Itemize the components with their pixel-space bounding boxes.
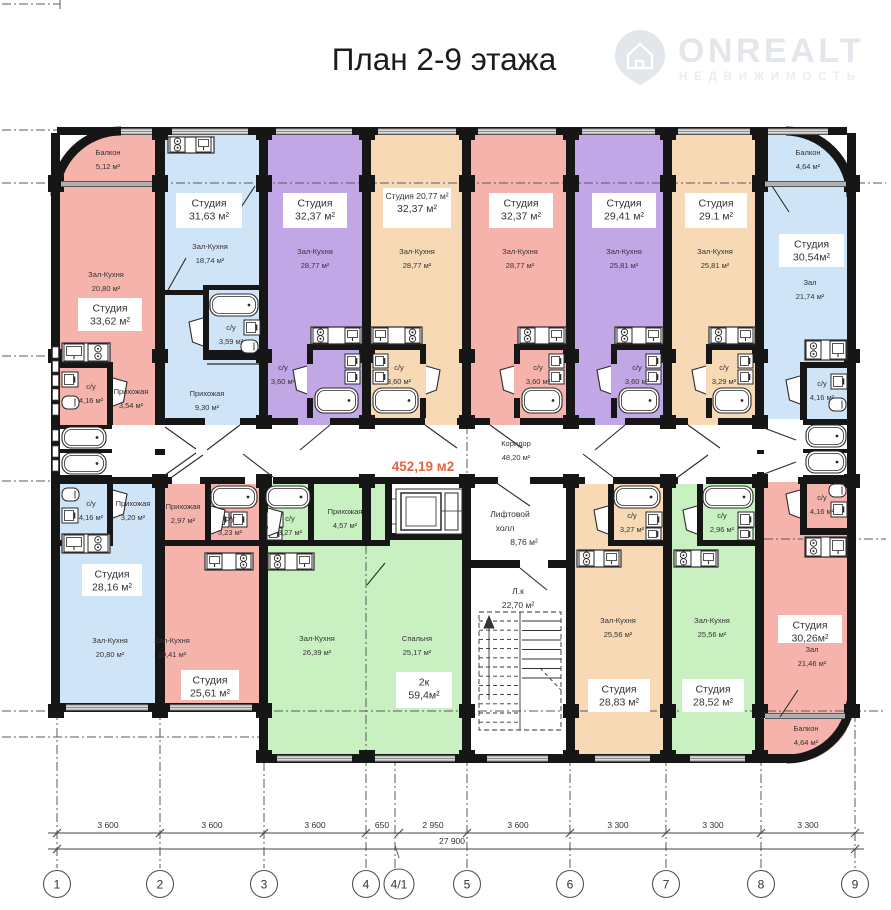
svg-text:18,74 м²: 18,74 м² [196,256,225,265]
svg-text:8: 8 [758,878,765,892]
svg-text:Зал-Кухня: Зал-Кухня [399,247,435,256]
svg-text:3 600: 3 600 [507,820,529,830]
svg-text:48,20 м²: 48,20 м² [502,453,531,462]
svg-text:Студия: Студия [92,303,127,315]
svg-text:Спальня: Спальня [402,634,432,643]
svg-text:8,76 м²: 8,76 м² [510,537,538,547]
svg-text:20,80 м²: 20,80 м² [96,650,125,659]
svg-text:4,64 м²: 4,64 м² [796,162,821,171]
svg-text:21,74 м²: 21,74 м² [796,292,825,301]
svg-text:с/у: с/у [278,363,288,372]
svg-text:2,96 м²: 2,96 м² [710,525,735,534]
svg-text:Зал: Зал [805,645,818,654]
svg-text:3,60 м²: 3,60 м² [387,377,412,386]
svg-text:3 300: 3 300 [797,820,819,830]
svg-text:3,60 м²: 3,60 м² [625,377,650,386]
svg-text:3 600: 3 600 [304,820,326,830]
svg-text:с/у: с/у [817,379,827,388]
svg-text:26,39 м²: 26,39 м² [303,648,332,657]
svg-text:с/у: с/у [817,493,827,502]
svg-text:Студия: Студия [606,198,641,210]
svg-text:3,60 м²: 3,60 м² [526,377,551,386]
svg-text:Зал-Кухня: Зал-Кухня [606,247,642,256]
svg-text:Зал-Кухня: Зал-Кухня [92,636,128,645]
svg-text:с/у: с/у [285,514,295,523]
svg-text:Балкон: Балкон [793,724,818,733]
svg-text:28,16 м²: 28,16 м² [92,582,132,594]
svg-text:Студия: Студия [503,198,538,210]
svg-text:3,59 м²: 3,59 м² [219,337,244,346]
svg-text:19,41 м²: 19,41 м² [158,650,187,659]
svg-text:Студия: Студия [601,684,636,696]
svg-text:3,29 м²: 3,29 м² [712,377,737,386]
svg-text:59,4м²: 59,4м² [408,690,440,702]
svg-text:32,37 м²: 32,37 м² [295,211,335,223]
svg-text:28,83 м²: 28,83 м² [599,697,639,709]
svg-text:3,23 м²: 3,23 м² [218,528,243,537]
svg-text:холл: холл [496,523,515,533]
svg-text:29,41 м²: 29,41 м² [604,211,644,223]
svg-text:Зал-Кухня: Зал-Кухня [192,242,228,251]
svg-text:5: 5 [464,878,471,892]
svg-text:29.1 м²: 29.1 м² [699,211,734,223]
svg-text:Студия 20,77 м²: Студия 20,77 м² [385,191,448,201]
svg-text:22,70 м²: 22,70 м² [502,600,534,610]
svg-text:25,81 м²: 25,81 м² [610,261,639,270]
svg-text:2,97 м²: 2,97 м² [171,516,196,525]
svg-text:32,37 м²: 32,37 м² [397,203,437,215]
svg-text:Коридор: Коридор [501,439,531,448]
svg-text:33,62 м²: 33,62 м² [90,316,130,328]
svg-text:3 600: 3 600 [201,820,223,830]
svg-text:2к: 2к [419,677,430,689]
svg-text:Прихожая: Прихожая [328,507,363,516]
svg-text:21,46 м²: 21,46 м² [798,659,827,668]
svg-text:9: 9 [852,878,859,892]
svg-text:с/у: с/у [225,514,235,523]
svg-text:4,16 м²: 4,16 м² [79,513,104,522]
svg-text:с/у: с/у [394,363,404,372]
svg-text:25,17 м²: 25,17 м² [403,648,432,657]
svg-text:с/у: с/у [632,363,642,372]
svg-text:Л.к: Л.к [512,586,524,596]
svg-text:Зал-Кухня: Зал-Кухня [88,270,124,279]
svg-text:Зал: Зал [803,278,816,287]
svg-text:Студия: Студия [794,239,829,251]
svg-text:Студия: Студия [698,198,733,210]
svg-text:3,27 м²: 3,27 м² [620,525,645,534]
svg-text:Студия: Студия [94,569,129,581]
svg-text:4,16 м²: 4,16 м² [79,396,104,405]
svg-text:9,30 м²: 9,30 м² [195,403,220,412]
svg-text:25,56 м²: 25,56 м² [604,630,633,639]
svg-text:Студия: Студия [192,675,227,687]
svg-text:Студия: Студия [695,684,730,696]
svg-text:25,81 м²: 25,81 м² [701,261,730,270]
svg-text:Прихожая: Прихожая [166,502,201,511]
svg-text:28,77 м²: 28,77 м² [403,261,432,270]
svg-text:4,57 м²: 4,57 м² [333,521,358,530]
svg-text:Зал-Кухня: Зал-Кухня [299,634,335,643]
svg-text:Прихожая: Прихожая [116,499,151,508]
svg-text:Прихожая: Прихожая [114,387,149,396]
svg-text:28,52 м²: 28,52 м² [693,697,733,709]
svg-text:Студия: Студия [191,198,226,210]
svg-text:5,12 м²: 5,12 м² [96,162,121,171]
svg-text:28,77 м²: 28,77 м² [301,261,330,270]
svg-text:3 600: 3 600 [97,820,119,830]
svg-text:6: 6 [567,878,574,892]
svg-text:с/у: с/у [717,511,727,520]
svg-text:Зал-Кухня: Зал-Кухня [297,247,333,256]
svg-text:30,54м²: 30,54м² [793,252,830,264]
svg-text:3,60 м²: 3,60 м² [271,377,296,386]
svg-text:ONREALT: ONREALT [678,32,864,70]
svg-text:4: 4 [363,878,370,892]
svg-text:3,27 м²: 3,27 м² [278,528,303,537]
svg-text:Лифтовой: Лифтовой [490,509,530,519]
svg-text:30,26м²: 30,26м² [792,633,829,645]
svg-text:Балкон: Балкон [95,148,120,157]
svg-text:3 300: 3 300 [702,820,724,830]
svg-text:28,77 м²: 28,77 м² [506,261,535,270]
svg-text:4,16 м²: 4,16 м² [810,393,835,402]
svg-text:Зал-Кухня: Зал-Кухня [600,616,636,625]
svg-text:План 2-9 этажа: План 2-9 этажа [332,41,557,77]
svg-text:4,64 м²: 4,64 м² [794,738,819,747]
svg-text:Зал-Кухня: Зал-Кухня [694,616,730,625]
svg-text:32,37 м²: 32,37 м² [501,211,541,223]
svg-text:3,54 м²: 3,54 м² [119,401,144,410]
svg-text:НЕДВИЖИМОСТЬ: НЕДВИЖИМОСТЬ [679,71,862,83]
svg-text:Прихожая: Прихожая [190,389,225,398]
svg-text:31,63 м²: 31,63 м² [189,211,229,223]
svg-text:25,56 м²: 25,56 м² [698,630,727,639]
svg-text:с/у: с/у [533,363,543,372]
svg-text:Балкон: Балкон [795,148,820,157]
svg-text:2: 2 [157,878,164,892]
svg-text:20,80 м²: 20,80 м² [92,284,121,293]
svg-text:Зал-Кухня: Зал-Кухня [154,636,190,645]
svg-text:с/у: с/у [226,323,236,332]
svg-text:Зал-Кухня: Зал-Кухня [697,247,733,256]
svg-text:4/1: 4/1 [391,878,408,892]
svg-text:25,61 м²: 25,61 м² [190,688,230,700]
svg-text:2 950: 2 950 [422,820,444,830]
svg-text:1: 1 [54,878,61,892]
svg-text:3: 3 [261,878,268,892]
svg-text:7: 7 [663,878,670,892]
svg-text:Студия: Студия [792,620,827,632]
svg-text:Зал-Кухня: Зал-Кухня [502,247,538,256]
svg-text:452,19 м2: 452,19 м2 [392,459,455,474]
svg-text:с/у: с/у [86,499,96,508]
svg-text:3,20 м²: 3,20 м² [121,513,146,522]
svg-text:с/у: с/у [627,511,637,520]
svg-text:Студия: Студия [297,198,332,210]
svg-text:650: 650 [375,820,389,830]
svg-text:с/у: с/у [719,363,729,372]
svg-text:3 300: 3 300 [607,820,629,830]
svg-text:с/у: с/у [86,382,96,391]
svg-text:4,16 м²: 4,16 м² [810,507,835,516]
svg-text:27 900: 27 900 [439,836,465,846]
